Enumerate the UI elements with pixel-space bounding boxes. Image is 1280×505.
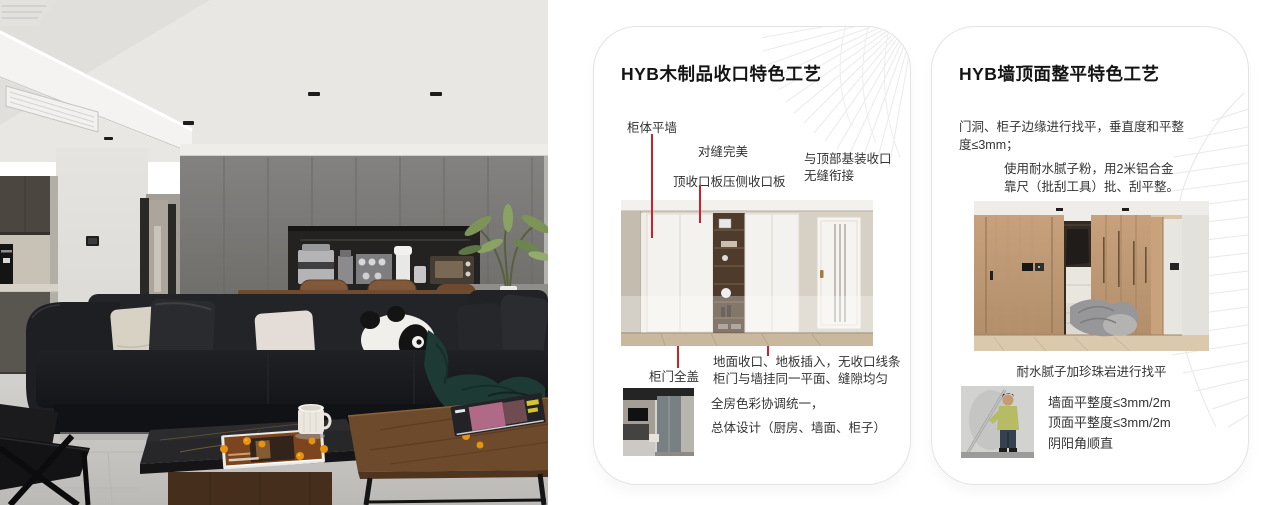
image-caption: 耐水腻子加珍珠岩进行找平 xyxy=(974,361,1209,380)
card-title: HYB木制品收口特色工艺 xyxy=(621,61,821,86)
worker-photo xyxy=(961,386,1034,458)
callout-line xyxy=(699,185,701,223)
card-title: HYB墙顶面整平特色工艺 xyxy=(959,61,1159,86)
putty-paragraph: 使用耐水腻子粉，用2米铝合金 靠尺（批刮工具）批、刮平整。 xyxy=(1004,161,1179,196)
wardrobe-photo xyxy=(621,200,873,346)
callout-line xyxy=(651,134,653,238)
callout-top-panel: 顶收口板压侧收口板 xyxy=(673,171,786,190)
callout-line xyxy=(677,346,679,368)
flatness-specs: 墙面平整度≤3mm/2m 顶面平整度≤3mm/2m 阴阳角顺直 xyxy=(1048,393,1171,454)
callout-line xyxy=(767,346,769,356)
leveling-paragraph: 门洞、柜子边缘进行找平，垂直度和平整 度≤3mm； xyxy=(959,119,1184,154)
callout-top-joint: 与顶部基装收口 无缝衔接 xyxy=(804,151,892,185)
design-summary: 全房色彩协调统一， 总体设计（厨房、墙面、柜子） xyxy=(711,392,886,440)
callout-door-cover: 柜门全盖 xyxy=(649,366,699,385)
card-wood-finish: HYB木制品收口特色工艺 柜体平墙 对缝完美 顶收口板压侧收口板 与顶部基装收口… xyxy=(593,26,911,485)
living-room-photo xyxy=(0,0,548,505)
living-room-photo-render xyxy=(0,0,548,505)
ceiling xyxy=(0,0,548,162)
callout-seam: 对缝完美 xyxy=(698,141,748,160)
callout-floor-joint: 地面收口、地板插入，无收口线条 柜门与墙挂同一平面、缝隙均匀 xyxy=(713,354,901,388)
card-wall-leveling: HYB墙顶面整平特色工艺 门洞、柜子边缘进行找平，垂直度和平整 度≤3mm； 使… xyxy=(931,26,1249,485)
page: HYB木制品收口特色工艺 柜体平墙 对缝完美 顶收口板压侧收口板 与顶部基装收口… xyxy=(0,0,1280,505)
entry-photo xyxy=(974,201,1209,351)
corridor-photo xyxy=(623,388,694,456)
